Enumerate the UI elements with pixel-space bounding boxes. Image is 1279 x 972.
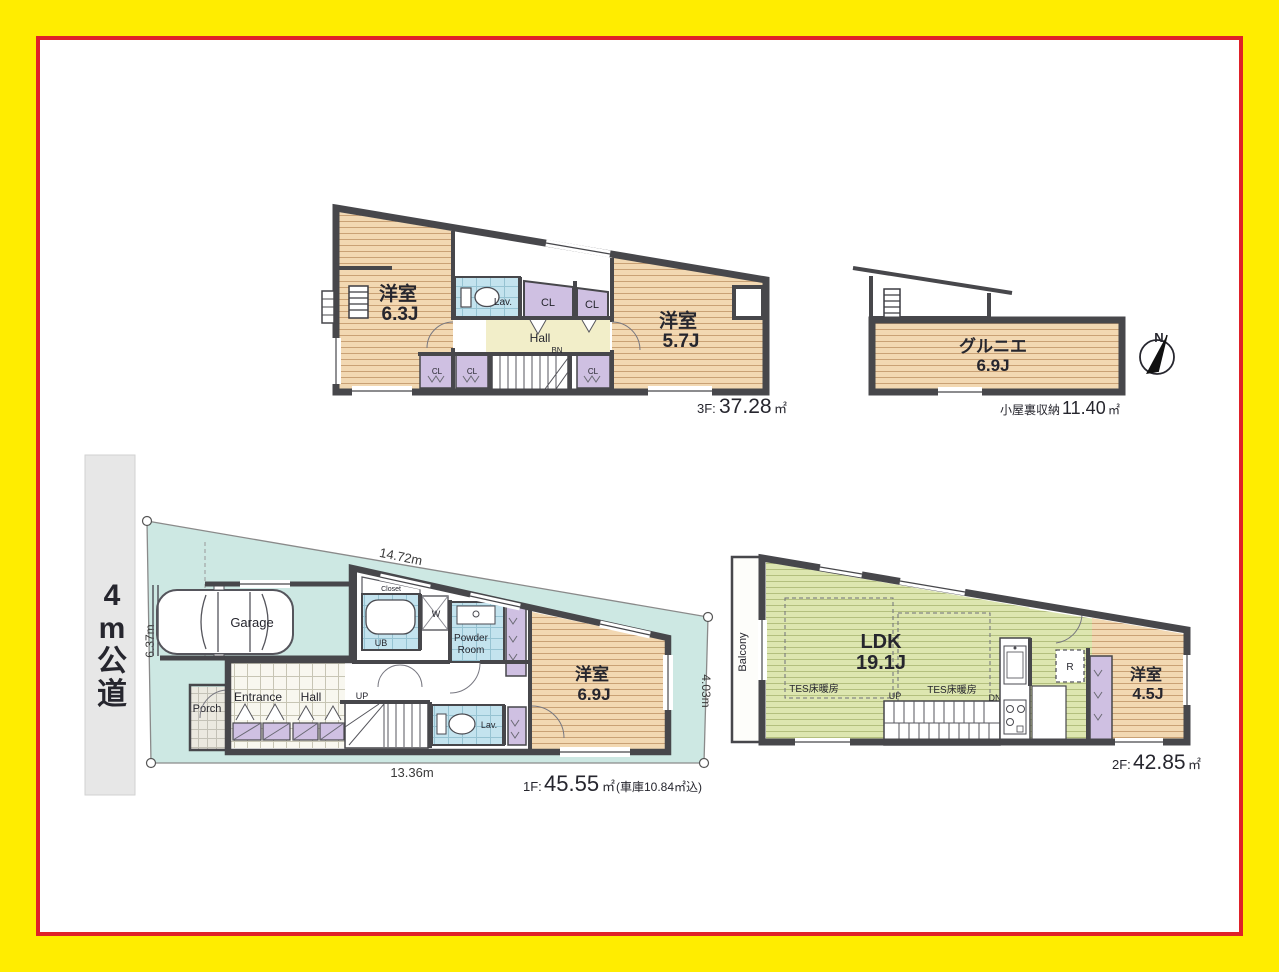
area-1f-prefix: 1F: [523,779,542,794]
lav-1f-label: Lav. [481,720,497,730]
ldk-size: 19.1J [856,652,906,674]
north-label: N [1154,330,1163,345]
floor-heating-label-left: TES床暖房 [789,682,838,695]
closet-3f-label-3: CL [432,367,443,376]
road-label-char-4: 道 [97,678,127,711]
closet-2f [1090,656,1112,740]
hall-1f-label: Hall [301,690,322,704]
up-1f-label: UP [356,691,369,701]
area-1f-note: (車庫10.84㎡込) [616,780,702,794]
up-2f-label: UP [889,691,902,701]
attic-roof-line [853,268,1012,293]
ladder-icon-3f [349,286,368,318]
closet-1f-tall [506,606,526,676]
dim-left: 6.37m [143,624,157,657]
attic-room-size: 6.9J [976,356,1009,375]
floorplan-page: 洋室 6.3J 洋室 5.7J Lav. CL CL Hall BN CL CL… [0,0,1279,972]
floorplan-drawing: 洋室 6.3J 洋室 5.7J Lav. CL CL Hall BN CL CL… [0,0,1279,972]
room-3f-west-name: 洋室 [379,282,417,305]
area-1f-value: 45.55 [544,771,599,796]
area-2f-prefix: 2F: [1112,757,1131,772]
room-3f-east-name: 洋室 [659,309,697,332]
attic-room-name: グルニエ [959,336,1027,356]
dim-right: 4.03m [699,674,713,707]
room-1f-size: 6.9J [577,685,610,704]
hall-3f-label: Hall [530,331,551,345]
area-2f-value: 42.85 [1133,751,1186,774]
area-label-2f: 2F: 42.85 ㎡ [1112,751,1201,774]
balcony-label: Balcony [737,632,749,672]
bn-label: BN [551,346,562,355]
area-label-attic: 小屋裏収納 11.40 ㎡ [1000,398,1120,418]
area-3f-value: 37.28 [719,395,772,418]
toilet-icon-1f [437,714,475,734]
powder-label-2: Room [458,645,485,656]
room-2f-name: 洋室 [1130,665,1162,684]
bathtub-icon [366,600,415,634]
ub-label: UB [375,638,388,648]
road-label-char-1: 4 [104,579,121,612]
area-attic-unit: ㎡ [1108,403,1120,417]
area-3f-prefix: 3F: [697,401,716,416]
ladder-icon-attic [884,289,900,319]
room-1f-name: 洋室 [575,664,609,684]
area-label-3f: 3F: 37.28 ㎡ [697,395,787,418]
area-attic-value: 11.40 [1062,398,1106,418]
floor-heating-label-right: TES床暖房 [927,683,976,696]
area-2f-unit: ㎡ [1188,757,1201,772]
room-2f-size: 4.5J [1132,686,1163,703]
room-3f-west-size: 6.3J [382,304,419,325]
kitchen-sink-icon [1004,646,1026,684]
washer-label: W [432,609,441,619]
area-1f-unit: ㎡ [602,779,615,794]
closet-1f-small [508,707,526,745]
closet-3f-label-4: CL [467,367,478,376]
closet-3f-label-2: CL [585,299,599,311]
closet-1f-label: Closet [381,586,401,593]
closet-3f-label-5: CL [588,367,599,376]
area-3f-unit: ㎡ [774,401,787,416]
fridge-label: R [1066,662,1073,673]
closet-3f-label-1: CL [541,297,555,309]
dim-bottom: 13.36m [390,765,433,780]
north-arrow-icon: N [1140,330,1174,374]
plan-2f: Balcony TES床暖房 TES床暖房 UP DN [732,557,1201,774]
plan-attic: グルニエ 6.9J 小屋裏収納 11.40 ㎡ [853,268,1122,418]
powder-label-1: Powder [454,633,489,644]
porch-floor [191,687,227,749]
area-label-1f: 1F: 45.55 ㎡ (車庫10.84㎡込) [523,771,702,796]
plan-3f: 洋室 6.3J 洋室 5.7J Lav. CL CL Hall BN CL CL… [322,208,787,418]
porch-label: Porch [193,703,222,715]
road-label-char-3: 公 [97,645,127,678]
stairs-1f [345,702,428,748]
lav-3f-label: Lav. [494,297,512,308]
void-3f-east [734,287,763,318]
garage-label: Garage [230,615,273,630]
area-attic-prefix: 小屋裏収納 [1000,402,1060,417]
stairs-3f [492,354,568,390]
stove-icon [1004,700,1026,734]
road-label-char-2: m [99,612,126,645]
ldk-name: LDK [860,631,902,653]
room-3f-east-size: 5.7J [663,331,700,352]
shoe-cabinets [233,723,344,740]
entrance-label: Entrance [234,690,282,704]
sink-icon-1f [457,606,495,624]
